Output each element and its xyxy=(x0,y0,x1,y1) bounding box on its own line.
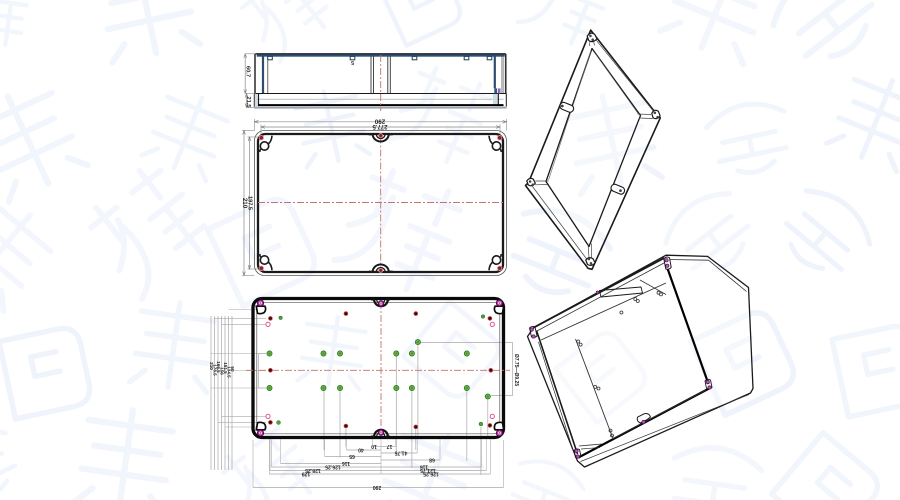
svg-text:126.25: 126.25 xyxy=(423,470,439,476)
svg-text:126.25: 126.25 xyxy=(325,463,341,469)
svg-text:10: 10 xyxy=(371,443,377,449)
svg-text:116: 116 xyxy=(342,460,350,466)
svg-text:68: 68 xyxy=(429,456,435,462)
svg-text:290: 290 xyxy=(373,484,382,490)
svg-text:197.5: 197.5 xyxy=(246,196,252,210)
svg-text:41.75: 41.75 xyxy=(394,449,407,455)
svg-text:129: 129 xyxy=(302,470,311,476)
svg-text:5: 5 xyxy=(351,59,354,65)
svg-text:50: 50 xyxy=(230,366,235,372)
svg-text:40: 40 xyxy=(358,446,364,452)
svg-text:Ø7.75—Ø9.25: Ø7.75—Ø9.25 xyxy=(513,354,519,386)
svg-text:65: 65 xyxy=(349,453,355,459)
svg-text:277.5: 277.5 xyxy=(372,123,388,129)
svg-text:17: 17 xyxy=(387,443,393,449)
svg-text:60.7: 60.7 xyxy=(244,66,250,77)
svg-text:21.5: 21.5 xyxy=(245,96,251,108)
